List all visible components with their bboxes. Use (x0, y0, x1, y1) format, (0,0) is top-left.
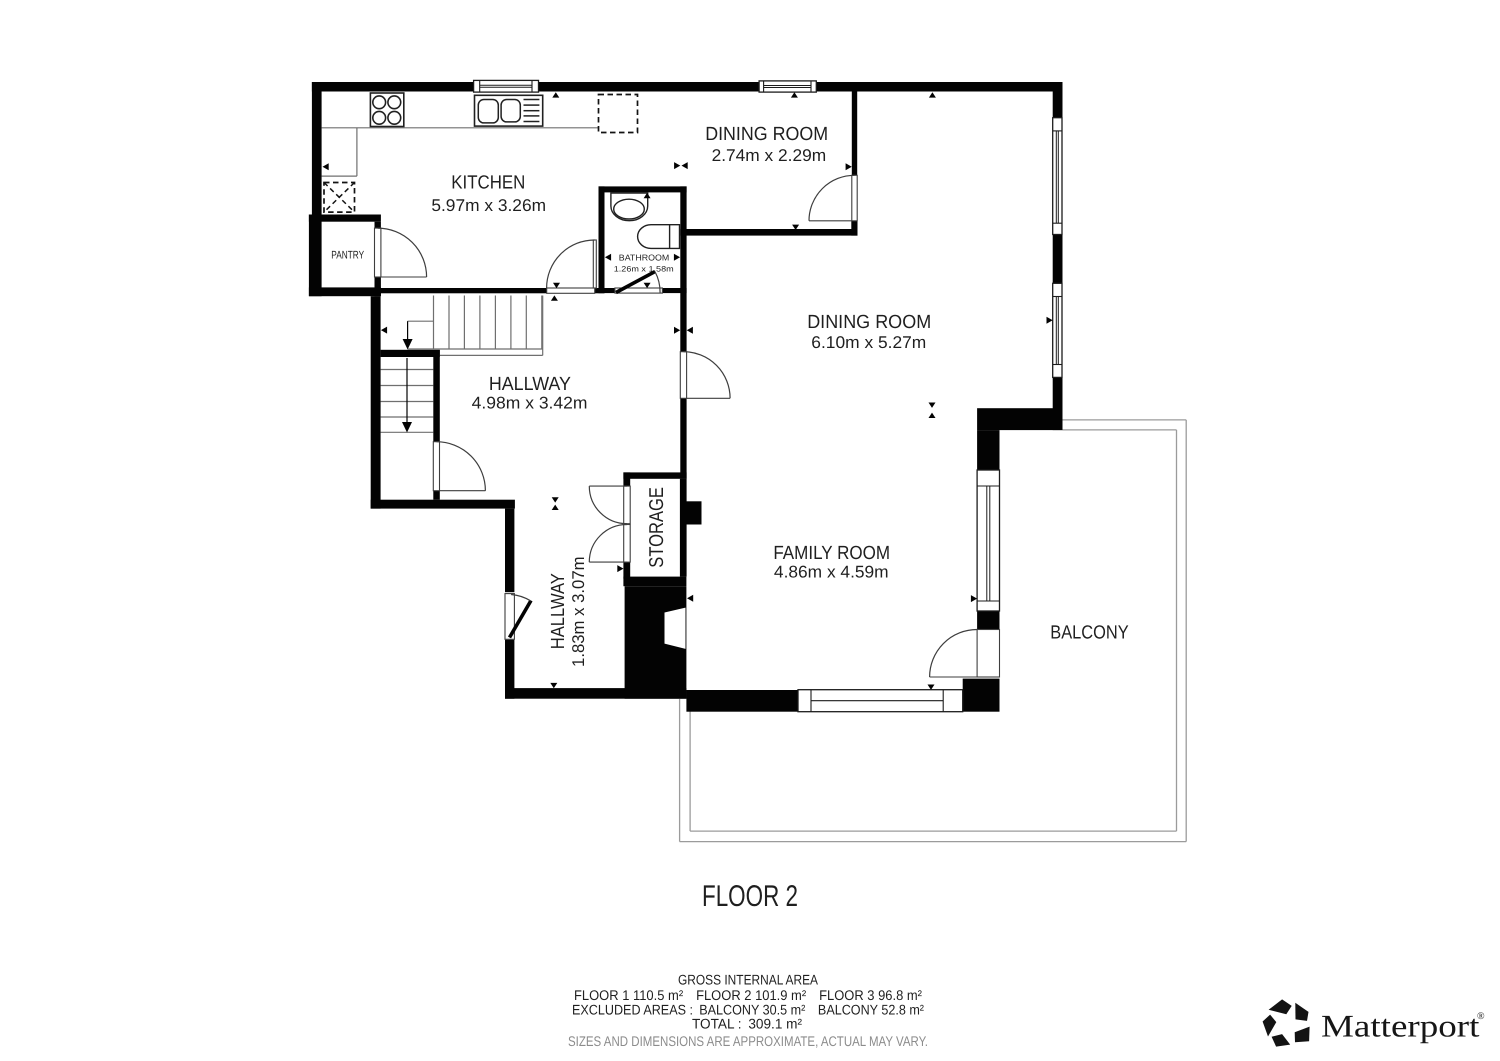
svg-text:PANTRY: PANTRY (331, 250, 364, 262)
svg-text:HALLWAY: HALLWAY (548, 573, 569, 649)
svg-text:STORAGE: STORAGE (646, 487, 668, 568)
svg-text:6.10m x 5.27m: 6.10m x 5.27m (811, 333, 926, 352)
svg-text:HALLWAY: HALLWAY (489, 374, 571, 395)
svg-text:FAMILY ROOM: FAMILY ROOM (773, 543, 890, 564)
svg-text:Matterport: Matterport (1321, 1009, 1480, 1044)
svg-text:SIZES AND DIMENSIONS ARE APPRO: SIZES AND DIMENSIONS ARE APPROXIMATE, AC… (568, 1033, 928, 1049)
svg-text:4.98m x 3.42m: 4.98m x 3.42m (472, 394, 588, 413)
svg-text:FLOOR 2: FLOOR 2 (702, 880, 798, 913)
svg-text:DINING ROOM: DINING ROOM (705, 124, 828, 145)
svg-text:KITCHEN: KITCHEN (451, 172, 525, 193)
svg-text:1.26m x 1.58m: 1.26m x 1.58m (614, 265, 674, 274)
svg-text:2.74m x 2.29m: 2.74m x 2.29m (712, 146, 827, 165)
svg-text:BALCONY: BALCONY (1050, 622, 1129, 643)
svg-text:TOTAL : 309.1 m²: TOTAL : 309.1 m² (692, 1016, 802, 1032)
svg-text:4.86m x 4.59m: 4.86m x 4.59m (774, 563, 889, 582)
svg-text:GROSS INTERNAL AREA: GROSS INTERNAL AREA (678, 972, 819, 988)
svg-text:®: ® (1477, 1011, 1485, 1022)
svg-text:DINING ROOM: DINING ROOM (807, 312, 931, 333)
svg-text:BATHROOM: BATHROOM (619, 252, 669, 262)
svg-text:5.97m x 3.26m: 5.97m x 3.26m (431, 196, 546, 215)
svg-text:1.83m x 3.07m: 1.83m x 3.07m (569, 556, 588, 667)
